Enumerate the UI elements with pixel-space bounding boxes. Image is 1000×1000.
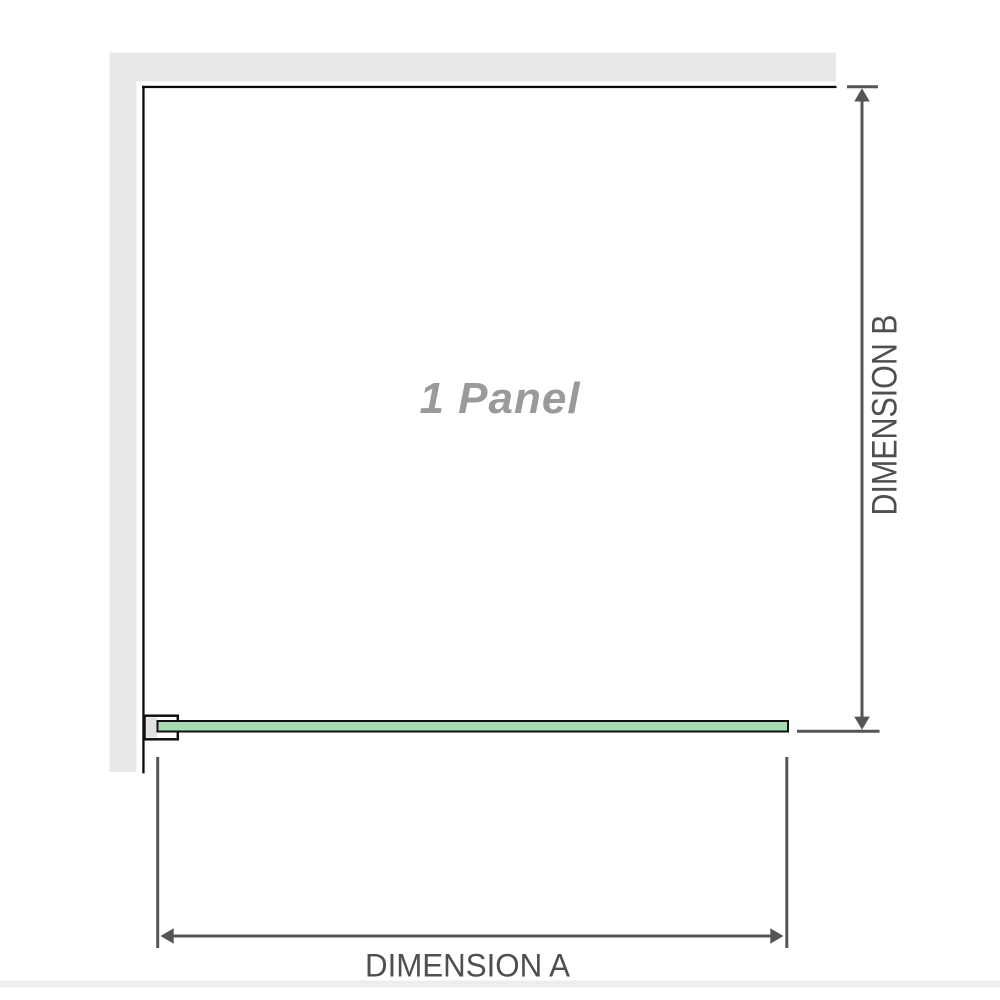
svg-text:DIMENSION B: DIMENSION B [866, 315, 905, 516]
svg-text:1 Panel: 1 Panel [419, 374, 580, 423]
svg-text:DIMENSION A: DIMENSION A [365, 948, 571, 984]
